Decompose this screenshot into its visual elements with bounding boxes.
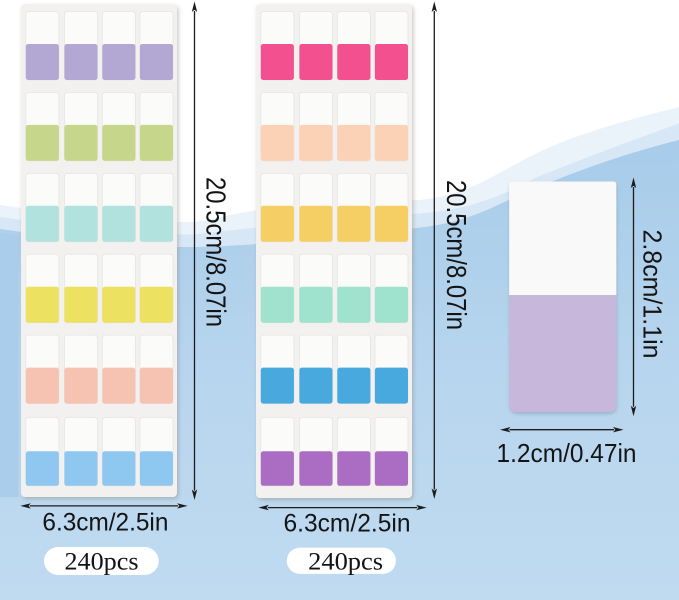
svg-text:1.2cm/0.47in: 1.2cm/0.47in [497, 438, 637, 468]
svg-text:240pcs: 240pcs [65, 549, 139, 576]
svg-text:6.3cm/2.5in: 6.3cm/2.5in [42, 509, 168, 537]
svg-text:20.5cm/8.07in: 20.5cm/8.07in [200, 177, 231, 327]
svg-text:6.3cm/2.5in: 6.3cm/2.5in [284, 510, 411, 538]
svg-text:2.8cm/1.1in: 2.8cm/1.1in [637, 230, 667, 359]
svg-text:240pcs: 240pcs [308, 549, 383, 576]
svg-text:20.5cm/8.07in: 20.5cm/8.07in [441, 180, 472, 330]
